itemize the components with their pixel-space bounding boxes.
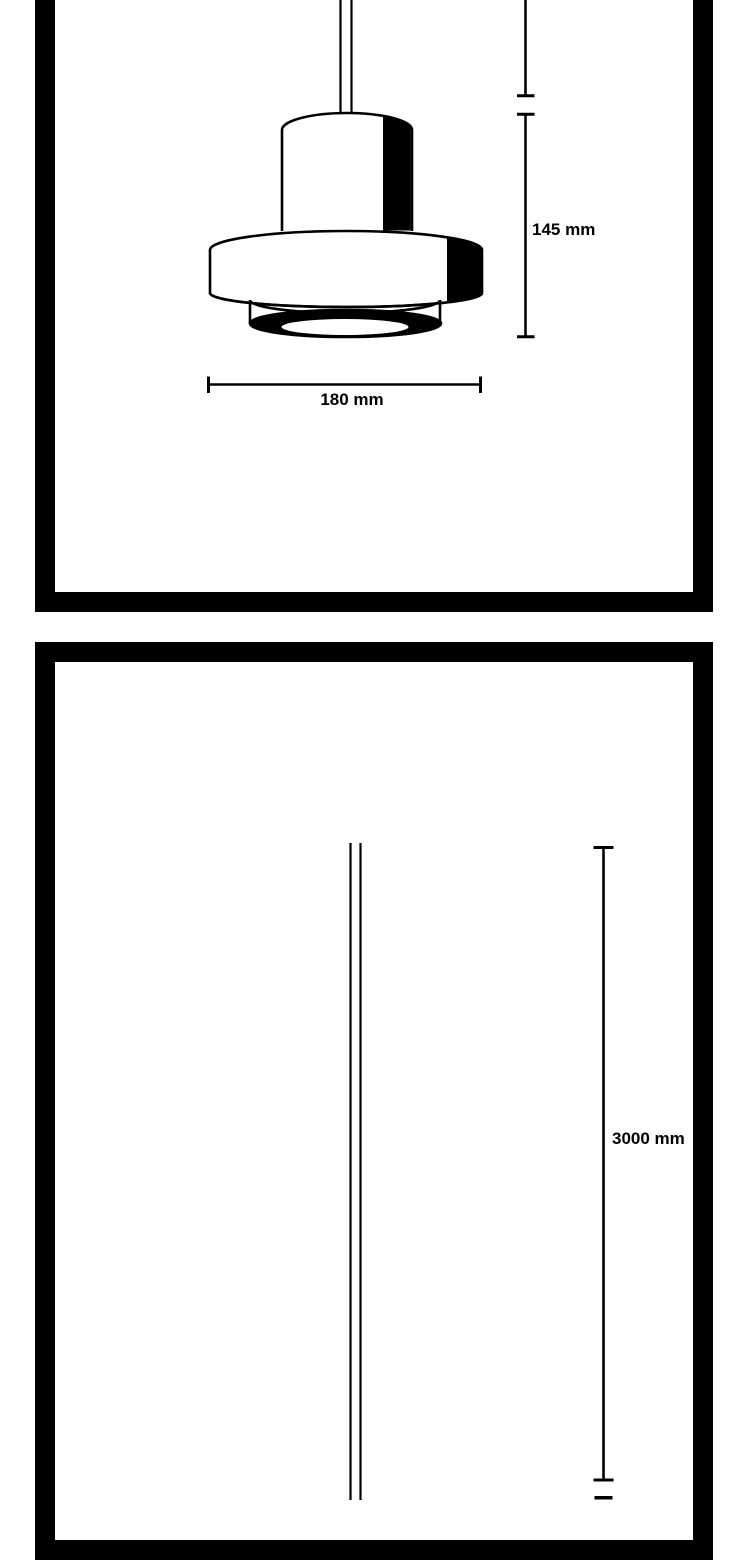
product-dimension-page: { "colors": { "ink": "#000000", "paper":… [0, 0, 750, 1500]
pendant-lamp-illustration [210, 0, 482, 337]
width-dimension-label: 180 mm [272, 390, 432, 409]
lamp-opening-center [282, 319, 409, 335]
cable-length-dimension-label: 3000 mm [612, 1129, 685, 1148]
cylinder-shading [383, 116, 411, 231]
cable-dimension-line [594, 848, 614, 1498]
height-dimension-line [517, 0, 535, 337]
drum-shading [447, 237, 482, 302]
technical-drawing-layer [0, 0, 750, 1500]
suspension-cable-illustration [351, 843, 361, 1500]
lamp-drum [210, 231, 482, 307]
height-dimension-label: 145 mm [532, 220, 595, 239]
